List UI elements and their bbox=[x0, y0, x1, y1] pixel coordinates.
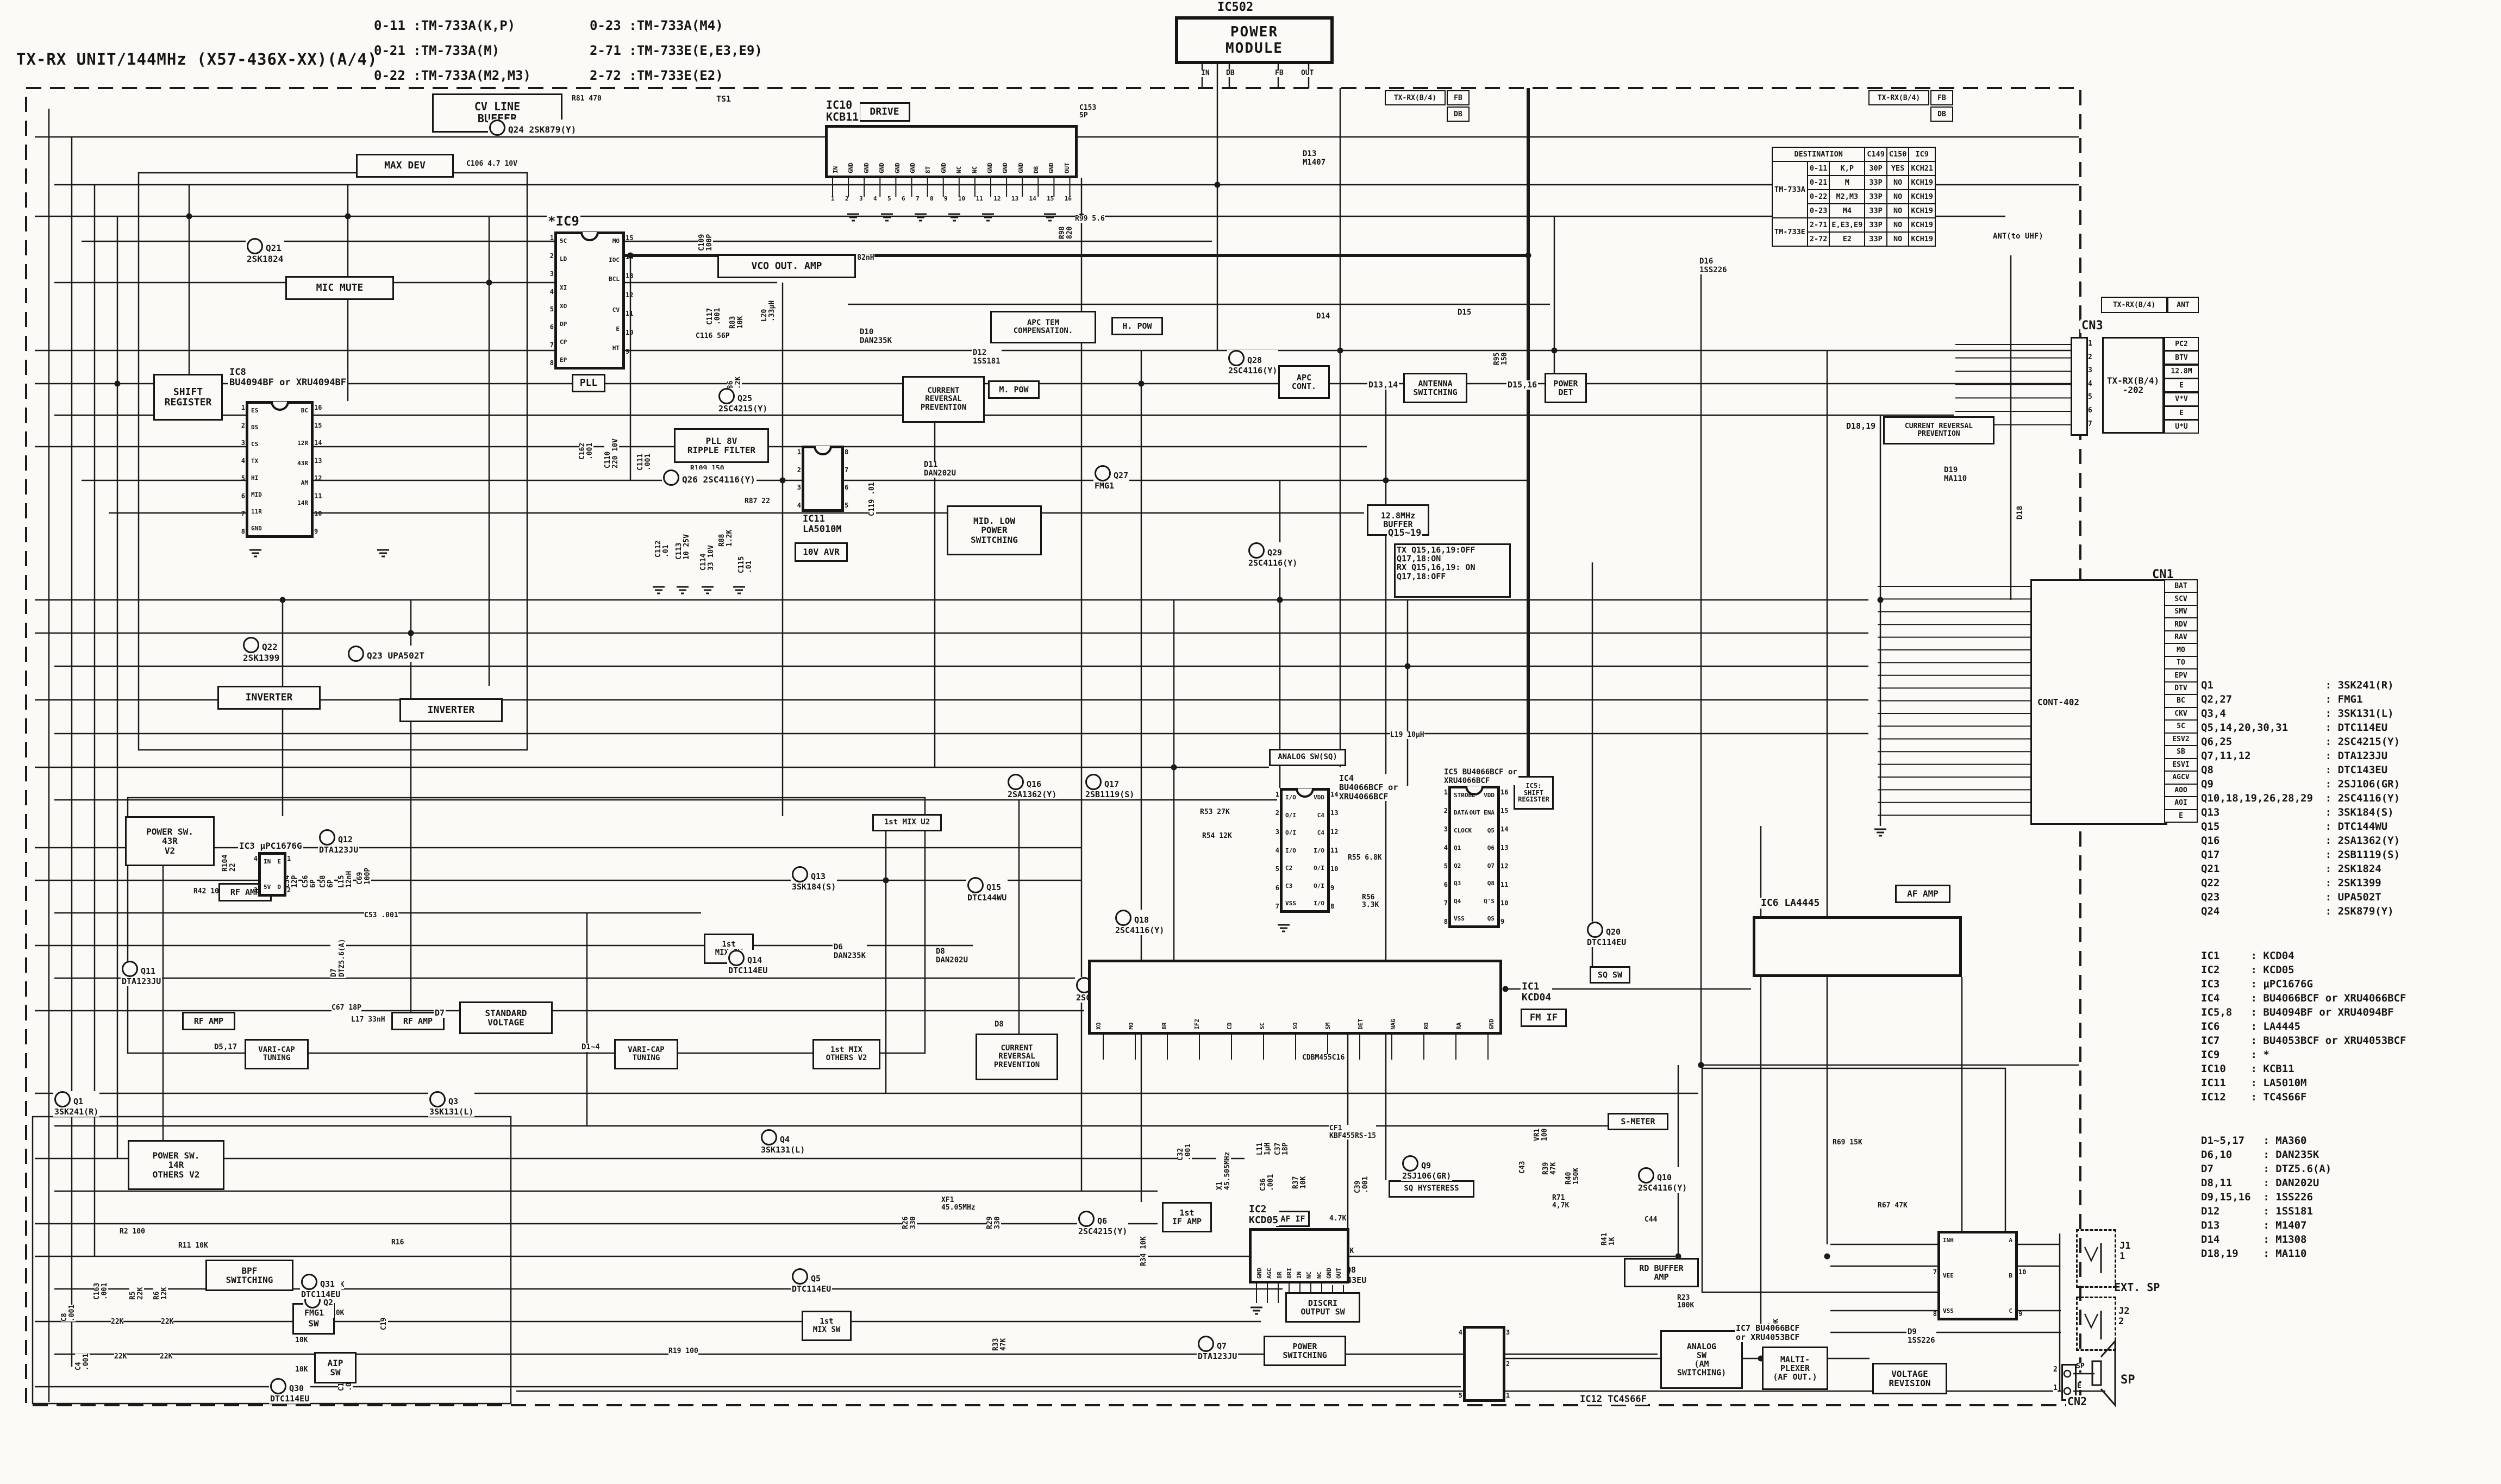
pin-label: I/O bbox=[1314, 900, 1324, 907]
pin-label: 11R bbox=[251, 508, 262, 515]
function-block-label: 1st MIX OTHERS V2 bbox=[812, 1039, 880, 1069]
component-callout: CN2 bbox=[2066, 1395, 2088, 1407]
cn1-pin-esvi: ESVI bbox=[2164, 758, 2198, 772]
function-block-label: FM IF bbox=[1521, 1009, 1567, 1027]
component-callout: D8 DAN202U bbox=[935, 948, 969, 965]
part-value-label: R33 47K bbox=[992, 1338, 1007, 1351]
part-value-label: 1 bbox=[2053, 1385, 2058, 1392]
part-value-label: C163 .001 bbox=[93, 1283, 108, 1300]
pin-label: 7 bbox=[1433, 899, 1448, 907]
pin-label: AGC bbox=[1266, 1244, 1273, 1279]
component-callout: Q21 2SK1824 bbox=[246, 238, 284, 264]
function-block-label: MID. LOW POWER SWITCHING bbox=[947, 505, 1042, 555]
pin-label: MO bbox=[1128, 980, 1135, 1030]
component-callout: SP bbox=[2119, 1374, 2136, 1387]
component-callout: *IC9 bbox=[547, 214, 580, 229]
part-value-label: XF1 45.05MHz bbox=[941, 1197, 976, 1211]
component-callout: J1 1 bbox=[2118, 1241, 2131, 1262]
pin-label: O/I bbox=[1314, 882, 1324, 890]
chip-left-pin-numbers: 45 bbox=[1447, 1329, 1462, 1399]
component-callout: D15,16 bbox=[1506, 380, 1538, 390]
pin-label: GND bbox=[1256, 1244, 1263, 1279]
pin-label: XO bbox=[560, 303, 567, 310]
pin-label: 11 bbox=[626, 310, 641, 317]
function-block-label: 1st MIX SW bbox=[802, 1311, 852, 1341]
part-value-label: C32 .001 bbox=[1177, 1144, 1192, 1161]
pin-label: 9 bbox=[944, 195, 948, 202]
pin-label: 9 bbox=[314, 528, 329, 535]
function-block-label: MALTI- PLEXER (AF OUT.) bbox=[1762, 1347, 1828, 1390]
pin-label: NC bbox=[971, 140, 978, 173]
ic-chip-ic11: 12348765 bbox=[802, 446, 844, 512]
ic-chip-ic2: GNDAGC8R8RIINNCNCGNDOUT bbox=[1249, 1228, 1349, 1283]
pin-label: 3 bbox=[1264, 828, 1279, 836]
pin-label: 13 bbox=[1500, 844, 1516, 851]
pin-label: TX bbox=[251, 458, 262, 465]
function-block-label: ANALOG SW (AM SWITCHING) bbox=[1660, 1330, 1743, 1389]
pin-label: XI bbox=[560, 284, 567, 291]
part-value-label: 4.7K bbox=[1329, 1215, 1346, 1223]
pin-label: 8 bbox=[230, 528, 245, 535]
pin-label: I/O bbox=[1285, 794, 1296, 801]
chip-right-pin-numbers: 8765 bbox=[845, 448, 860, 509]
pin-label: 12 bbox=[626, 291, 641, 299]
pin-label: CP bbox=[560, 339, 567, 346]
function-block-label: VARI-CAP TUNING bbox=[245, 1039, 309, 1069]
component-callout: TS1 bbox=[715, 95, 732, 104]
pin-label: 13 bbox=[1330, 809, 1346, 817]
component-callout: Q31 DTC114EU bbox=[300, 1274, 341, 1299]
pin-label: 10 bbox=[2018, 1268, 2034, 1276]
component-callout: IC7 BU4066BCF or XRU4053BCF bbox=[1735, 1324, 1800, 1342]
function-block-label: AF IF bbox=[1276, 1211, 1310, 1227]
function-block-label: VARI-CAP TUNING bbox=[614, 1039, 678, 1069]
function-block-label: ANTENNA SWITCHING bbox=[1403, 373, 1467, 403]
pin-label: DP bbox=[560, 321, 567, 328]
pin-label: NC bbox=[1316, 1244, 1323, 1279]
chip-left-pin-numbers: 12345678 bbox=[539, 234, 554, 367]
part-value-label: CF1 KBF455RS-15 bbox=[1329, 1125, 1376, 1139]
chip-bottom-pins: INGNDGNDGNDGNDGND8TGNDNCNCGNDGNDGNDDBGND… bbox=[832, 140, 1071, 173]
pin-label: RD bbox=[1423, 980, 1430, 1030]
ic-chip-ic3: IN5VEO4312 bbox=[258, 852, 286, 897]
pin-label: Q7 bbox=[1470, 862, 1495, 869]
pin-label: Q'S bbox=[1470, 898, 1495, 905]
part-value-label: R81 470 bbox=[572, 95, 602, 103]
part-value-label: R37 10K bbox=[1292, 1176, 1307, 1189]
cn1-pin-dtv: DTV bbox=[2164, 681, 2198, 695]
component-callout: Q12 DTA123JU bbox=[318, 829, 359, 855]
parts-list-row: IC11 : LA5010M bbox=[2201, 1076, 2406, 1090]
pin-label: Q5 bbox=[1470, 827, 1495, 834]
pin-label: GND bbox=[1325, 1244, 1333, 1279]
parts-list-diodes: D1~5,17 : MA360D6,10 : DAN235KD7 : DTZ5.… bbox=[2201, 1134, 2331, 1261]
model-list-column-2: 0-23 :TM-733A(M4) 2-71 :TM-733E(E,E3,E9)… bbox=[590, 13, 762, 88]
ic-chip-ic6 bbox=[1753, 916, 1962, 977]
ant-tag-right: ANT bbox=[2167, 297, 2199, 313]
parts-list-row: D18,19 : MA110 bbox=[2201, 1247, 2331, 1261]
pin-label: CD bbox=[1226, 980, 1233, 1030]
component-callout: Q28 2SC4116(Y) bbox=[1227, 350, 1278, 375]
pin-label: 7 bbox=[1264, 903, 1279, 910]
pin-label: 12 bbox=[1330, 828, 1346, 836]
chip-right-pin-numbers: 141312111098 bbox=[1330, 791, 1346, 910]
part-value-label: C39 .001 bbox=[1354, 1176, 1369, 1193]
pin-label: SM bbox=[1324, 980, 1331, 1030]
rf-tag-cell-db: DB bbox=[1447, 107, 1470, 122]
pin-label: IN bbox=[832, 140, 839, 173]
parts-list-row: D12 : 1SS181 bbox=[2201, 1204, 2331, 1218]
pin-label: 14 bbox=[626, 253, 641, 261]
part-value-label: C58 6P bbox=[320, 875, 334, 888]
parts-list-row: IC5,8 : BU4094BF or XRU4094BF bbox=[2201, 1005, 2406, 1019]
pin-label: GND bbox=[1002, 140, 1009, 173]
part-value-label: C4 .001 bbox=[75, 1354, 90, 1370]
function-block-label: M. POW bbox=[988, 380, 1040, 399]
parts-list-row: Q21 : 2SK1824 bbox=[2201, 862, 2400, 876]
component-callout: IC10 KCB11 bbox=[825, 99, 860, 123]
pin-label: 4 bbox=[539, 288, 554, 296]
component-callout: D6 DAN235K bbox=[833, 943, 867, 960]
function-block-label: MAX DEV bbox=[356, 154, 454, 178]
pin-label: 15 bbox=[1500, 807, 1516, 815]
component-callout: IC6 LA4445 bbox=[1760, 898, 1821, 909]
part-value-label: C114 33 10V bbox=[700, 545, 715, 571]
part-value-label: OUT bbox=[1301, 70, 1314, 77]
part-value-label: L15 12nH bbox=[338, 871, 353, 888]
part-value-label: 10K bbox=[295, 1337, 308, 1344]
part-value-label: R67 47K bbox=[1878, 1202, 1908, 1210]
pin-label: 4 bbox=[873, 195, 877, 202]
component-callout: Q6 2SC4215(Y) bbox=[1077, 1211, 1128, 1236]
parts-list-row: Q23 : UPA502T bbox=[2201, 890, 2400, 904]
rf-tag-cell-fb: FB bbox=[1930, 90, 1953, 105]
pin-label: 15 bbox=[626, 234, 641, 242]
part-value-label: R2 100 bbox=[120, 1228, 145, 1236]
pin-label: DS bbox=[251, 424, 262, 431]
component-callout: D10 DAN235K bbox=[859, 328, 893, 345]
part-value-label: C8 .001 bbox=[61, 1305, 76, 1322]
page-title: TX-RX UNIT/144MHz (X57-436X-XX)(A/4) bbox=[16, 50, 378, 68]
pin-label: GND bbox=[894, 140, 901, 173]
component-callout: IC2 KCD05 bbox=[1248, 1204, 1279, 1226]
pin-label: OUT bbox=[1064, 140, 1071, 173]
pin-label: 2 bbox=[1433, 807, 1448, 815]
pin-label: 8R bbox=[1276, 1244, 1283, 1279]
component-callout: Q15 DTC144WU bbox=[966, 877, 1008, 903]
rf-tag-label-0: TX-RX(B/4) bbox=[1385, 90, 1446, 105]
function-block-label: 10V AVR bbox=[795, 542, 848, 562]
component-callout: Q16 2SA1362(Y) bbox=[1006, 774, 1058, 799]
ant-tag-left: TX-RX(B/4) bbox=[2101, 297, 2167, 313]
component-callout: D19 MA110 bbox=[1943, 466, 1968, 483]
ic-chip-ic10: INGNDGNDGNDGNDGND8TGNDNCNCGNDGNDGNDDBGND… bbox=[825, 125, 1078, 178]
function-block-label: S-METER bbox=[1608, 1113, 1668, 1130]
component-callout: IC12 TC4S66F bbox=[1579, 1394, 1648, 1405]
pin-label: 43R bbox=[297, 460, 308, 467]
pin-label: 14 bbox=[1330, 791, 1346, 798]
component-callout: D14 bbox=[1315, 312, 1331, 321]
component-callout: D13,14 bbox=[1367, 380, 1399, 390]
parts-list-row: Q3,4 : 3SK131(L) bbox=[2201, 706, 2400, 721]
pin-label: EP bbox=[560, 356, 567, 364]
pin-label: XO bbox=[1095, 980, 1102, 1030]
pin-label: 10 bbox=[1500, 899, 1516, 907]
pin-label: 3 bbox=[859, 195, 863, 202]
chip-right-pins: BC12R43RAM14R bbox=[297, 407, 308, 532]
pin-label: 12R bbox=[297, 440, 308, 447]
cn1-pin-to: TO bbox=[2164, 656, 2198, 669]
chip-right-pins: ABC bbox=[2009, 1237, 2012, 1314]
parts-list-row: D8,11 : DAN202U bbox=[2201, 1176, 2331, 1190]
part-value-label: C67 18P bbox=[332, 1004, 361, 1012]
part-value-label: R87 22 bbox=[745, 498, 770, 505]
pin-label: 6 bbox=[1433, 881, 1448, 888]
component-callout: IC11 LA5010M bbox=[802, 514, 843, 535]
pin-label: 14 bbox=[314, 439, 329, 447]
part-value-label: C53 .001 bbox=[364, 912, 398, 919]
component-callout: D5,17 bbox=[213, 1043, 238, 1052]
pin-label: GND bbox=[1488, 980, 1495, 1030]
part-value-label: FB bbox=[1275, 70, 1284, 77]
parts-list-row: IC1 : KCD04 bbox=[2201, 949, 2406, 963]
function-block-label: MIC MUTE bbox=[285, 276, 394, 300]
cn3-pin-number: 2 bbox=[2088, 354, 2092, 361]
chip-left-pins: IN5V bbox=[264, 858, 271, 891]
parts-list-row: D14 : M1308 bbox=[2201, 1232, 2331, 1247]
component-callout: Q30 DTC114EU bbox=[269, 1378, 310, 1404]
part-value-label: R29 330 bbox=[986, 1217, 1001, 1229]
pin-label: E bbox=[609, 325, 620, 333]
ic-chip-ic5: STROBEDATACLOCKQ1Q2Q3Q4VSSVDDOUT ENAQ5Q6… bbox=[1448, 786, 1500, 928]
pin-label: 2 bbox=[539, 252, 554, 260]
pin-label: CV bbox=[609, 306, 620, 314]
part-value-label: IN bbox=[1201, 70, 1210, 77]
pin-label: 10 bbox=[626, 329, 641, 336]
part-value-label: R88 1.2K bbox=[718, 530, 733, 547]
component-callout: Q13 3SK184(S) bbox=[791, 866, 837, 892]
component-callout: D8 bbox=[993, 1020, 1005, 1029]
parts-list-row: Q10,18,19,26,28,29 : 2SC4116(Y) bbox=[2201, 791, 2400, 805]
part-value-label: 22K bbox=[111, 1318, 123, 1326]
cn3-remote-box: TX-RX(B/4) -202 bbox=[2102, 337, 2164, 434]
component-callout: Q7 DTA123JU bbox=[1197, 1336, 1238, 1361]
chip-right-pins: EO bbox=[277, 858, 281, 891]
part-value-label: R56 3.3K bbox=[1362, 894, 1379, 909]
pin-label: C4 bbox=[1314, 812, 1324, 819]
pin-label: 2 bbox=[1264, 809, 1279, 817]
pin-label: GND bbox=[986, 140, 993, 173]
chip-left-pins: 5CLDXIXODPCPEP bbox=[560, 237, 567, 364]
pin-label: 2 bbox=[845, 195, 849, 202]
part-value-label: R53 27K bbox=[1200, 809, 1230, 816]
function-block-label: SQ SW bbox=[1590, 966, 1630, 984]
cn1-pin-rdv: RDV bbox=[2164, 617, 2198, 631]
component-callout: Q14 DTC114EU bbox=[727, 950, 768, 975]
parts-list-row: D9,15,16 : 1SS226 bbox=[2201, 1190, 2331, 1204]
pin-label: 13 bbox=[1011, 195, 1018, 202]
function-block-label: 1st MIX U2 bbox=[872, 814, 942, 831]
parts-list-row: IC10 : KCB11 bbox=[2201, 1062, 2406, 1076]
pin-label: 6 bbox=[902, 195, 905, 202]
pin-label: 13 bbox=[626, 272, 641, 280]
pin-label: Q8 bbox=[1470, 880, 1495, 887]
part-value-label: C115 .01 bbox=[738, 556, 753, 573]
pin-label: 6 bbox=[539, 323, 554, 331]
pin-label: NAG bbox=[1390, 980, 1397, 1030]
chip-left-pin-numbers: 1234 bbox=[786, 448, 801, 509]
cn3-signal-5: E bbox=[2164, 406, 2199, 420]
part-value-label: R19 100 bbox=[668, 1348, 698, 1355]
parts-list-row: D13 : M1407 bbox=[2201, 1218, 2331, 1232]
cn1-pin-aoi: AOI bbox=[2164, 796, 2198, 810]
parts-list-row: IC6 : LA4445 bbox=[2201, 1019, 2406, 1034]
part-value-label: L20 .33μH bbox=[761, 300, 776, 322]
rf-tag-label-1: TX-RX(B/4) bbox=[1868, 90, 1929, 105]
pin-label: 3 bbox=[786, 484, 801, 491]
cn3-pin-number: 5 bbox=[2088, 393, 2092, 401]
pin-label: 5 bbox=[1447, 1392, 1462, 1399]
chip-left-pins: ESDSCSTXHIMID11RGND bbox=[251, 407, 262, 532]
cn3-pin-number: 1 bbox=[2088, 340, 2092, 348]
pin-label: 8RI bbox=[1286, 1244, 1293, 1279]
pin-label: 5 bbox=[845, 502, 860, 509]
part-value-label: R69 15K bbox=[1833, 1139, 1862, 1147]
pin-label: INH bbox=[1943, 1237, 1954, 1244]
chip-center-label: POWER MODULE bbox=[1178, 20, 1330, 61]
function-block-label: ANALOG SW(SQ) bbox=[1269, 749, 1346, 766]
cn3-pin-number: 6 bbox=[2088, 407, 2092, 415]
parts-list-row: Q22 : 2SK1399 bbox=[2201, 876, 2400, 890]
component-callout: Q26 2SC4116(Y) bbox=[662, 469, 756, 486]
cn3-pin-strip bbox=[2071, 337, 2088, 436]
pin-label: 8 bbox=[930, 195, 934, 202]
part-value-label: R6 12K bbox=[153, 1287, 168, 1300]
pin-label: 4 bbox=[1433, 844, 1448, 851]
part-value-label: CDBM455C16 bbox=[1302, 1054, 1345, 1062]
tx-rx-state-note: TX Q15,16,19:OFF Q17,18:ON RX Q15,16,19:… bbox=[1394, 543, 1511, 598]
component-callout: D7 DTZ5.6(A) bbox=[330, 938, 346, 978]
parts-list-row: Q17 : 2SB1119(S) bbox=[2201, 848, 2400, 862]
part-value-label: R83 10K bbox=[729, 316, 744, 329]
part-value-label: C37 18P bbox=[1274, 1143, 1289, 1155]
component-callout: IC3 μPC1676G bbox=[238, 841, 303, 851]
component-callout: Q22 2SK1399 bbox=[242, 637, 280, 663]
component-callout: J2 2 bbox=[2117, 1306, 2130, 1327]
pin-label: 1 bbox=[786, 448, 801, 456]
pin-label: OUT bbox=[1335, 1244, 1342, 1279]
part-value-label: C111 .001 bbox=[637, 454, 652, 471]
part-value-label: R39 47K bbox=[1542, 1162, 1557, 1175]
pin-label: AM bbox=[297, 479, 308, 486]
pin-label: 6 bbox=[1264, 884, 1279, 892]
pin-label: 7 bbox=[1922, 1268, 1937, 1276]
pin-label: 4 bbox=[1447, 1329, 1462, 1336]
function-block-label: AF AMP bbox=[1895, 885, 1950, 903]
cn3-signal-0: PC2 bbox=[2164, 337, 2199, 351]
function-block-label: CURRENT REVERSAL PREVENTION bbox=[1883, 416, 1994, 444]
ic-chip-ic9: 5CLDXIXODPCPEPMOIOCBCLCVEHT1234567815141… bbox=[554, 231, 625, 370]
pin-label: 16 bbox=[1065, 195, 1072, 202]
function-block-label: POWER SWITCHING bbox=[1264, 1336, 1346, 1366]
component-callout: ANT(to UHF) bbox=[1992, 233, 2044, 241]
chip-left-pins: I/OO/IO/II/OC2C3VSS bbox=[1285, 794, 1296, 907]
pin-label: I/O bbox=[1285, 847, 1296, 854]
pin-label: 9 bbox=[2018, 1310, 2034, 1318]
chip-right-pin-numbers: 1514131211109 bbox=[626, 234, 641, 367]
pin-label: 9 bbox=[626, 348, 641, 355]
function-block-label: CURRENT REVERSAL PREVENTION bbox=[976, 1034, 1058, 1080]
cn1-pin-sb: SB bbox=[2164, 745, 2198, 759]
component-callout: D7 bbox=[434, 1009, 446, 1018]
part-value-label: X1 45.505MHz bbox=[1216, 1152, 1231, 1190]
function-block-label: IC5: SHIFT REGISTER bbox=[1514, 776, 1554, 810]
pin-label: 1 bbox=[1264, 791, 1279, 798]
pin-label: OUT ENA bbox=[1470, 809, 1495, 816]
part-value-label: R55 6.8K bbox=[1348, 854, 1382, 862]
cn1-pin-esv2: ESV2 bbox=[2164, 732, 2198, 746]
pin-label: VEE bbox=[1943, 1272, 1954, 1279]
component-callout: Q4 3SK131(L) bbox=[760, 1129, 806, 1155]
cn3-signal-2: 12.8M bbox=[2164, 365, 2199, 379]
pin-label: 5 bbox=[1433, 862, 1448, 870]
parts-list-row: Q16 : 2SA1362(Y) bbox=[2201, 834, 2400, 848]
pin-label: 5 bbox=[539, 305, 554, 313]
component-callout: Q3 3SK131(L) bbox=[428, 1091, 474, 1117]
part-value-label: L19 10μH bbox=[1390, 731, 1424, 739]
destination-table: DESTINATIONC149C150IC9TM-733A0-11K,P30PY… bbox=[1772, 147, 1936, 247]
pin-label: 14 bbox=[1500, 825, 1516, 833]
part-value-label: E bbox=[2077, 1382, 2081, 1390]
parts-list-row: Q2,27 : FMG1 bbox=[2201, 692, 2400, 706]
pin-label: HI bbox=[251, 474, 262, 481]
part-value-label: C56 6P bbox=[302, 875, 317, 888]
part-value-label: C69 100P bbox=[357, 868, 371, 885]
pin-label: 16 bbox=[1500, 788, 1516, 796]
pin-label: I/O bbox=[1314, 847, 1324, 854]
pin-label: 1 bbox=[1433, 788, 1448, 796]
pin-label: GND bbox=[847, 140, 854, 173]
pin-label: 7 bbox=[916, 195, 920, 202]
pin-label: 10 bbox=[314, 510, 329, 517]
pin-label: 5V bbox=[264, 884, 271, 891]
parts-list-row: D7 : DTZ5.6(A) bbox=[2201, 1162, 2331, 1176]
part-value-label: DB bbox=[1226, 70, 1235, 77]
part-value-label: R5 22K bbox=[129, 1287, 144, 1300]
parts-list-row: IC4 : BU4066BCF or XRU4066BCF bbox=[2201, 991, 2406, 1005]
pin-label: IOC bbox=[609, 256, 620, 264]
parts-list-row: Q24 : 2SK879(Y) bbox=[2201, 904, 2400, 918]
pin-label: Q6 bbox=[1470, 844, 1495, 851]
cn3-signal-6: U*U bbox=[2164, 419, 2199, 434]
component-callout: Q25 2SC4215(Y) bbox=[717, 388, 768, 414]
chip-right-pin-numbers: 161514131211109 bbox=[1500, 788, 1516, 925]
parts-list-row: IC12 : TC4S66F bbox=[2201, 1090, 2406, 1104]
chip-left-pin-numbers: 78 bbox=[1922, 1233, 1937, 1318]
part-value-label: C153 5P bbox=[1079, 104, 1096, 119]
chip-left-pin-numbers: 1234567 bbox=[1264, 791, 1279, 910]
pin-label: 6 bbox=[845, 484, 860, 491]
parts-list-row: Q6,25 : 2SC4215(Y) bbox=[2201, 735, 2400, 749]
component-callout: IC5 BU4066BCF or XRU4066BCF bbox=[1443, 768, 1518, 785]
chip-bottom-pins: GNDAGC8R8RIINNCNCGNDOUT bbox=[1256, 1244, 1342, 1279]
part-value-label: R16 bbox=[391, 1239, 404, 1247]
part-value-label: 22K bbox=[114, 1353, 127, 1361]
pin-label: C bbox=[2009, 1307, 2012, 1314]
pin-label: 3 bbox=[242, 886, 258, 894]
ic-chip-ic1: XOMO8RIF2CDSCSOSMDETNAGRDRAGND bbox=[1088, 960, 1502, 1035]
ic-chip-ic8: ESDSCSTXHIMID11RGNDBC12R43RAM14R12345678… bbox=[246, 401, 314, 538]
